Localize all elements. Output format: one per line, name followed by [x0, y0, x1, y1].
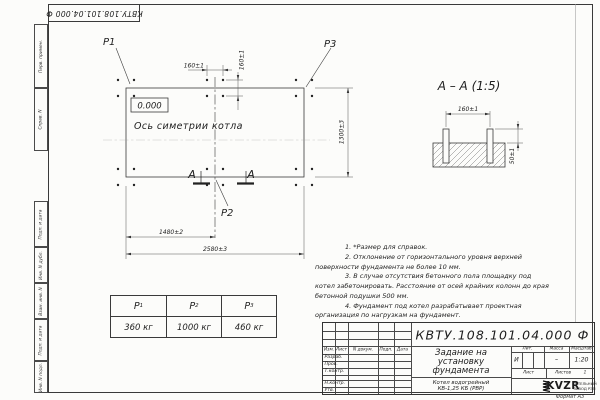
- row-utv: Утв.: [325, 388, 335, 393]
- note-4: 4. Фундамент под котел разрабатывает про…: [315, 302, 553, 322]
- sheet-label: Лист: [523, 371, 534, 376]
- row-tkontr: Т.контр.: [325, 369, 345, 374]
- note-1: 1. *Размер для справок.: [315, 243, 553, 253]
- dim-bolt-spacing-v: [226, 72, 243, 110]
- dim-section-160: [446, 111, 490, 127]
- row-prov: Пров.: [325, 362, 338, 367]
- row-nkontr: Н.контр.: [325, 381, 346, 386]
- dim-text-1300: 1300±3: [339, 120, 346, 144]
- scale-label: Масштаб: [571, 347, 591, 352]
- col-podp: Подп.: [379, 348, 392, 353]
- note-2: 2. Отклонение от горизонтального уровня …: [315, 253, 553, 273]
- dim-text-1480: 1480±2: [159, 229, 183, 236]
- lit-value: И: [514, 357, 519, 364]
- load-table-header-p3: P3: [221, 296, 276, 317]
- drawing-sheet: КВТУ.108.101.04.000 Ф Перв. примен. Спра…: [0, 0, 600, 400]
- mass-label: Масса: [550, 347, 564, 352]
- title-block: КВТУ.108.101.04.000 Ф Изм. Лист N докум.…: [322, 322, 595, 395]
- symmetry-axis-label: Ось симетрии котла: [134, 121, 243, 132]
- dim-width-1300: [315, 88, 353, 177]
- company-line1: КОТЕЛЬНЫЙ: [572, 382, 596, 386]
- product-line1: Котел водогрейный: [433, 380, 490, 386]
- format-label: Формат А3: [545, 394, 595, 400]
- scale-value: 1:20: [575, 357, 589, 364]
- row-razrab: Разраб.: [325, 355, 343, 360]
- anchor-bolt-right: [487, 129, 493, 163]
- dim-text-section-50: 50±1: [509, 148, 516, 164]
- col-list: Лист: [336, 348, 347, 353]
- dim-text-section-160: 160±1: [458, 106, 478, 113]
- dim-text-160h: 160±1: [184, 63, 204, 70]
- load-point-p1-label: P1: [103, 37, 115, 48]
- col-izm: Изм.: [324, 348, 334, 353]
- col-data: Дата: [397, 348, 408, 353]
- load-table-value-p3: 460 кг: [221, 317, 276, 338]
- dim-text-160v: 160±1: [239, 50, 246, 70]
- load-point-p2-label: P2: [221, 208, 233, 219]
- lit-label: Лит.: [523, 347, 533, 352]
- col-ndokum: N докум.: [353, 348, 373, 353]
- product-line2: КВ-1,25 КБ (РВР): [438, 386, 485, 392]
- sheets-label: Листов: [555, 371, 571, 376]
- dim-text-2580: 2580±3: [203, 246, 227, 253]
- p-sub: 3: [250, 303, 254, 309]
- anchor-bolt-left: [443, 129, 449, 163]
- p-sub: 2: [195, 303, 199, 309]
- titleblock-designation: КВТУ.108.101.04.000 Ф: [416, 327, 590, 342]
- load-table-value-p2: 1000 кг: [166, 317, 221, 338]
- sheets-value: 1: [584, 371, 587, 376]
- section-letter-left: А: [187, 168, 196, 181]
- doc-title-line3: фундамента: [433, 366, 490, 376]
- section-letter-right: А: [246, 168, 255, 181]
- p-sub: 1: [140, 303, 144, 309]
- load-table-value-p1: 360 кг: [111, 317, 166, 338]
- elevation-value: 0.000: [137, 102, 161, 112]
- technical-notes: 1. *Размер для справок. 2. Отклонение от…: [315, 243, 553, 321]
- load-point-p3-label: P3: [324, 39, 336, 50]
- section-view-title: А – А (1:5): [437, 79, 501, 93]
- mass-value: –: [555, 357, 558, 364]
- load-table-header-p1: P1: [111, 296, 166, 317]
- company-line2: ЗАВОД РЭП: [574, 387, 596, 391]
- load-table: P1 P2 P3 360 кг 1000 кг 460 кг: [110, 295, 277, 338]
- dim-length-1480: [126, 186, 215, 259]
- load-table-header-p2: P2: [166, 296, 221, 317]
- note-3: 3. В случае отсутствия бетонного пола пл…: [315, 272, 553, 301]
